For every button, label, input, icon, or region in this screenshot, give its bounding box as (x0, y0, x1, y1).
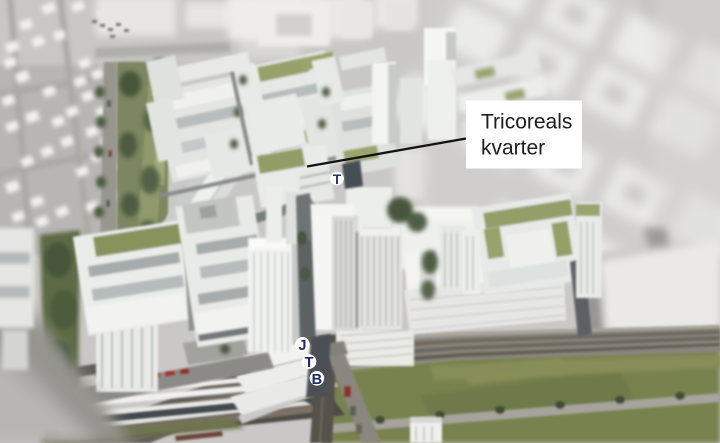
svg-text:J: J (298, 338, 306, 354)
svg-text:Tricoreals: Tricoreals (481, 111, 572, 134)
svg-text:kvarter: kvarter (481, 137, 545, 160)
svg-text:B: B (312, 372, 322, 388)
svg-text:T: T (305, 355, 314, 371)
svg-text:T: T (333, 172, 342, 187)
